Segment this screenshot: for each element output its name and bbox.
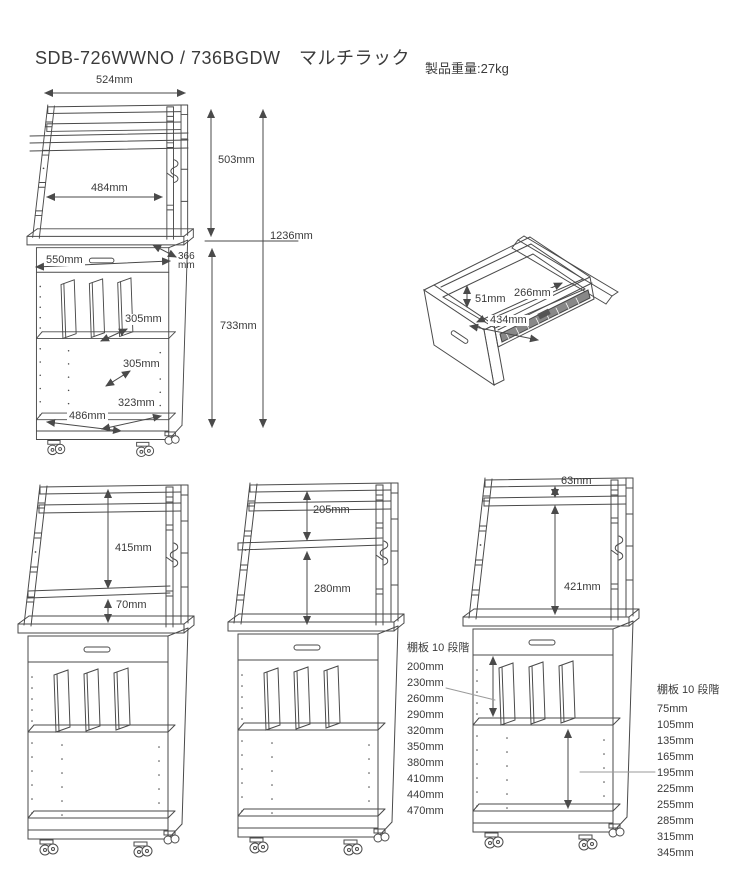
shelf-step-item: 260mm [407, 691, 469, 707]
shelf-step-item: 165mm [657, 749, 719, 765]
dim-inner-width: 484mm [91, 183, 128, 194]
dim-left-lower-space: 70mm [116, 600, 147, 611]
shelf-step-item: 75mm [657, 701, 719, 717]
dim-total-height: 1236mm [270, 231, 313, 242]
shelf-step-item: 255mm [657, 797, 719, 813]
dim-lower-height: 733mm [220, 321, 257, 332]
shelf-step-item: 315mm [657, 829, 719, 845]
dim-top-width: 524mm [96, 75, 133, 86]
dim-counter-width: 550mm [44, 255, 85, 266]
shelf-step-item: 200mm [407, 659, 469, 675]
shelf-step-item: 230mm [407, 675, 469, 691]
shelf-step-item: 350mm [407, 739, 469, 755]
figure-variant-left [18, 485, 194, 857]
dim-right-main-space: 421mm [564, 582, 601, 593]
page-title: SDB-726WWNO / 736BGDW マルチラック [35, 44, 410, 70]
figure-main-unit [27, 93, 298, 457]
figure-variant-middle [228, 483, 404, 855]
dim-middle-shelf-depth: 305mm [121, 359, 162, 370]
diagram-linework [0, 0, 730, 890]
shelf-step-item: 440mm [407, 787, 469, 803]
product-weight: 製品重量:27kg [425, 58, 509, 77]
shelf-step-item: 225mm [657, 781, 719, 797]
shelf-step-item: 380mm [407, 755, 469, 771]
dim-drawer-inner-depth: 266mm [512, 288, 553, 299]
shelf-list-title: 棚板 10 段階 [657, 682, 719, 698]
dim-counter-depth: 366mm [178, 252, 195, 270]
shelf-step-item: 195mm [657, 765, 719, 781]
figure-drawer-detail [424, 236, 618, 385]
dim-bottom-inner-width: 486mm [67, 411, 108, 422]
dim-middle-lower-space: 280mm [314, 584, 351, 595]
shelf-list-title: 棚板 10 段階 [407, 640, 469, 656]
dim-divider-shelf-depth: 305mm [123, 314, 164, 325]
shelf-step-item: 285mm [657, 813, 719, 829]
shelf-step-item: 470mm [407, 803, 469, 819]
dim-upper-height: 503mm [218, 155, 255, 166]
dim-left-upper-space: 415mm [115, 543, 152, 554]
dim-drawer-inner-width: 434mm [488, 315, 529, 326]
shelf-step-item: 410mm [407, 771, 469, 787]
shelf-step-item: 290mm [407, 707, 469, 723]
shelf-list-upper-compartment: 棚板 10 段階 200mm 230mm 260mm 290mm 320mm 3… [407, 640, 469, 819]
dim-bottom-shelf-depth: 323mm [116, 398, 157, 409]
dim-counter-depth-unit: mm [178, 260, 195, 271]
dim-middle-upper-space: 205mm [313, 505, 350, 516]
diagram-page: SDB-726WWNO / 736BGDW マルチラック 製品重量:27kg 5… [0, 0, 730, 890]
figure-variant-right [446, 478, 655, 850]
shelf-step-item: 135mm [657, 733, 719, 749]
shelf-step-item: 320mm [407, 723, 469, 739]
shelf-step-item: 105mm [657, 717, 719, 733]
dim-right-top-space: 63mm [561, 476, 592, 487]
dim-drawer-inner-height: 51mm [473, 294, 508, 305]
shelf-list-lower-compartment: 棚板 10 段階 75mm 105mm 135mm 165mm 195mm 22… [657, 682, 719, 861]
shelf-step-item: 345mm [657, 845, 719, 861]
